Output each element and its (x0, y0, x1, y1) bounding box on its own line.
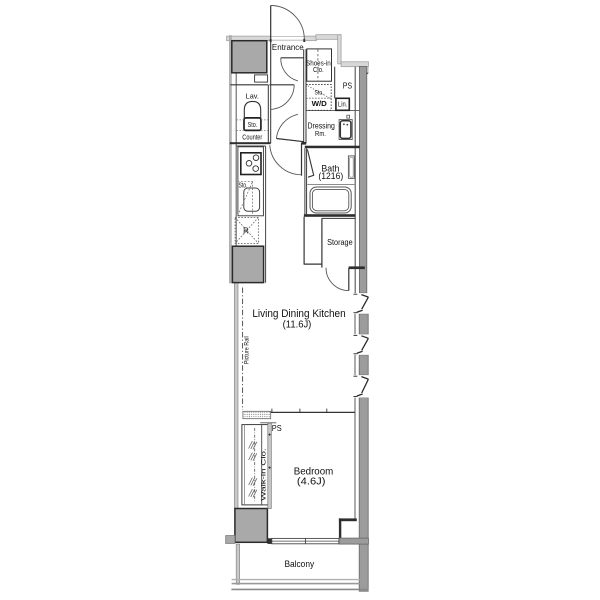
svg-text:Picture Rail: Picture Rail (245, 336, 251, 364)
svg-text:Entrance: Entrance (272, 42, 304, 52)
svg-text:Sto.: Sto. (314, 89, 323, 96)
svg-text:(11.6J): (11.6J) (283, 320, 312, 331)
svg-text:Rm.: Rm. (315, 129, 326, 138)
svg-text:Sto.: Sto. (239, 180, 248, 189)
svg-text:Storage: Storage (327, 238, 353, 247)
svg-text:Bedroom: Bedroom (294, 466, 334, 477)
svg-text:Walk-in Clo.: Walk-in Clo. (260, 448, 267, 501)
svg-text:Sto.: Sto. (248, 120, 258, 129)
svg-text:Living Dining Kitchen: Living Dining Kitchen (252, 308, 345, 320)
svg-text:Lav.: Lav. (246, 92, 259, 101)
svg-text:Clo.: Clo. (313, 67, 324, 74)
svg-text:Balcony: Balcony (284, 559, 314, 569)
svg-text:PS: PS (343, 81, 353, 91)
svg-text:Counter: Counter (242, 132, 262, 141)
svg-text:(1216): (1216) (318, 171, 343, 181)
svg-text:(4.6J): (4.6J) (297, 477, 326, 488)
svg-text:W/D: W/D (312, 99, 327, 108)
svg-text:PS: PS (272, 424, 282, 433)
svg-text:Lin.: Lin. (338, 102, 347, 109)
svg-text:R: R (243, 226, 249, 235)
